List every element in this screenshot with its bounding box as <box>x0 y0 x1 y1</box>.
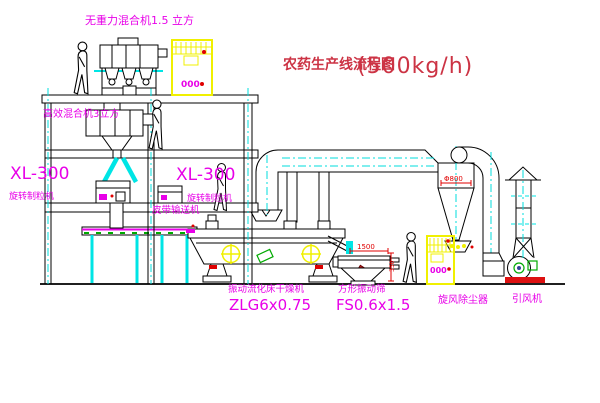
roof-slab <box>42 95 258 103</box>
label-fan: 引风机 <box>512 292 542 305</box>
label-xl300-mid: XL-300 <box>176 165 235 185</box>
exhaust-duct <box>256 150 438 215</box>
discharge-pipe <box>110 203 123 228</box>
cabinet2-display: 000 <box>430 266 447 275</box>
label-dryer-model: ZLG6x0.75 <box>229 296 311 314</box>
dim-screen-width: 1500 <box>357 243 375 251</box>
fluid-bed-dryer <box>186 172 345 282</box>
label-granulator-mid: 旋转制粒机 <box>187 192 232 204</box>
belt-conveyor <box>82 227 206 283</box>
process-flow-diagram: 000 Φ8 <box>0 0 600 403</box>
cad-flow-diagram-canvas: 000 Φ8 <box>0 0 600 403</box>
label-screen-model: FS0.6x1.5 <box>336 296 410 314</box>
label-mixer-top: 无重力混合机1.5 立方 <box>85 13 194 27</box>
granulator-1 <box>96 181 130 203</box>
label-dryer-name: 振动流化床干燥机 <box>228 283 305 295</box>
label-cyclone: 旋风除尘器 <box>438 293 488 306</box>
cabinet1-display: 000 <box>181 80 200 90</box>
dim-screen-height: 350 <box>389 260 396 272</box>
drawing-title: 农药生产线流程图 (500kg/h) <box>282 54 473 79</box>
y-splitter-chute <box>104 158 136 182</box>
exhaust-stack <box>505 167 541 258</box>
gravity-free-mixer <box>94 38 167 95</box>
title-capacity: (500kg/h) <box>357 54 473 79</box>
label-xl300-left: XL-300 <box>10 164 69 184</box>
induced-draft-fan <box>483 253 545 283</box>
label-belt-conveyor: 皮带输送机 <box>152 204 200 216</box>
label-screen-name: 方形振动筛 <box>338 283 386 295</box>
person-figure <box>74 42 88 94</box>
person-figure <box>403 233 416 283</box>
fan-base <box>505 277 545 283</box>
granulator-2 <box>158 186 182 203</box>
control-cabinet-2: 000 <box>427 236 454 284</box>
dim-cyclone-inlet: Φ800 <box>444 175 463 183</box>
label-mixer-floor2: 高效混合机3立方 <box>43 107 119 120</box>
control-cabinet-1: 000 <box>172 40 212 95</box>
label-granulator-left: 旋转制粒机 <box>9 190 54 202</box>
